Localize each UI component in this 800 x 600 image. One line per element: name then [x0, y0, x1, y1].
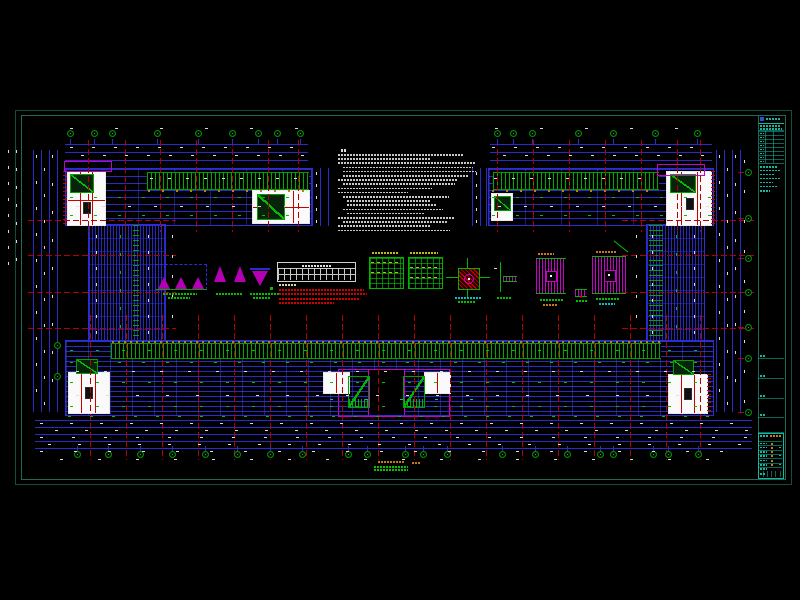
- dim-text: [258, 444, 261, 445]
- dim-text: [145, 430, 148, 431]
- dim-text: [422, 277, 425, 278]
- detail-column-base: [446, 258, 490, 298]
- dim-text: [250, 341, 252, 343]
- axis-extension: [94, 139, 95, 145]
- dim-text: [584, 451, 587, 452]
- dim-text: [36, 389, 37, 392]
- dim-text: [266, 416, 269, 417]
- dim-text: [595, 430, 598, 431]
- dim-text: [652, 315, 653, 318]
- dim-text: [176, 190, 178, 192]
- dim-text: [618, 190, 620, 192]
- dim-text: [448, 341, 450, 343]
- notes-line: [338, 162, 476, 164]
- dim-text: [616, 382, 619, 383]
- dim-text: [316, 172, 317, 175]
- dim-text: [205, 128, 208, 129]
- dimension-line: [490, 144, 712, 145]
- dim-text: [492, 197, 495, 198]
- dim-text: [660, 197, 663, 198]
- hatch-square-icon: [70, 174, 94, 193]
- dim-text: [376, 416, 379, 417]
- annotation-label: [497, 297, 511, 299]
- dim-text: [178, 416, 181, 417]
- axis-bubble: [745, 289, 752, 296]
- dim-text: [735, 379, 736, 382]
- dim-text: [640, 423, 643, 424]
- dim-text: [384, 371, 387, 372]
- schedule-grid: [278, 269, 355, 280]
- dim-text: [470, 399, 473, 400]
- grid-axis-line: [28, 220, 176, 221]
- dim-text: [496, 341, 498, 343]
- dim-text: [652, 283, 653, 286]
- cad-viewport[interactable]: [0, 0, 800, 600]
- annotation-label: [378, 461, 404, 463]
- dim-text: [466, 341, 468, 343]
- dim-text: [652, 251, 653, 254]
- dim-text: [478, 459, 481, 460]
- dim-text: [358, 341, 360, 343]
- annotation-label: [576, 300, 588, 302]
- dim-text: [252, 382, 255, 383]
- dim-text: [70, 382, 73, 383]
- dimension-line: [35, 420, 752, 421]
- dim-text: [592, 459, 595, 460]
- dim-text: [662, 416, 665, 417]
- dim-text: [44, 376, 45, 379]
- dim-text: [630, 128, 633, 129]
- dim-text: [130, 341, 132, 343]
- dim-text: [394, 341, 396, 343]
- dim-text: [564, 406, 567, 407]
- dim-text: [304, 341, 306, 343]
- annotation-label: [279, 302, 334, 304]
- annotation-label: [253, 297, 271, 299]
- dim-text: [96, 299, 97, 302]
- dim-text: [371, 272, 374, 273]
- dim-text: [94, 362, 97, 363]
- dim-text: [680, 206, 683, 207]
- dim-text: [214, 197, 217, 198]
- dim-text: [664, 371, 667, 372]
- dim-text: [160, 371, 163, 372]
- annotation-label: [458, 301, 476, 303]
- grid-axis-line: [622, 328, 755, 329]
- dim-text: [148, 235, 149, 238]
- anchor-ring-icon: [464, 274, 474, 284]
- dim-text: [530, 416, 533, 417]
- dim-text: [492, 190, 494, 192]
- dim-text: [85, 430, 88, 431]
- dim-text: [727, 246, 728, 249]
- notes-line: [343, 175, 469, 177]
- dim-text: [328, 371, 331, 372]
- dimension-line: [724, 150, 725, 412]
- dim-text: [395, 272, 398, 273]
- dim-text: [257, 155, 260, 156]
- dim-text: [460, 350, 463, 351]
- dim-text: [265, 430, 268, 431]
- dim-text: [180, 206, 183, 207]
- dim-text: [8, 182, 9, 185]
- dim-text: [576, 206, 579, 207]
- annotation-label: [596, 298, 620, 300]
- dim-text: [124, 341, 126, 343]
- dimension-line: [35, 434, 752, 435]
- dim-text: [148, 331, 149, 334]
- axis-extension: [232, 139, 233, 145]
- dim-text: [358, 362, 361, 363]
- dim-text: [552, 416, 555, 417]
- dim-text: [744, 370, 745, 373]
- annotation-label: [372, 252, 398, 254]
- axis-bubble: [229, 130, 236, 137]
- dim-text: [408, 444, 411, 445]
- dim-text: [162, 190, 164, 192]
- dim-text: [574, 341, 576, 343]
- dimension-line: [320, 168, 321, 226]
- dim-text: [694, 299, 695, 302]
- dim-text: [516, 459, 519, 460]
- dim-text: [76, 371, 79, 372]
- dim-text: [244, 451, 247, 452]
- dim-text: [392, 437, 395, 438]
- dim-text: [414, 451, 417, 452]
- dim-text: [125, 155, 128, 156]
- axis-bubble: [510, 130, 517, 137]
- dim-text: [616, 341, 618, 343]
- dim-text: [52, 379, 53, 382]
- dim-text: [36, 337, 37, 340]
- dim-text: [744, 340, 745, 343]
- dim-text: [434, 382, 437, 383]
- dim-text: [478, 362, 481, 363]
- dim-text: [122, 350, 125, 351]
- dim-text: [138, 444, 141, 445]
- dim-text: [738, 444, 741, 445]
- shaft-opening: [85, 387, 93, 399]
- dim-text: [166, 395, 169, 396]
- notes-line: [338, 217, 454, 219]
- axis-extension: [70, 139, 71, 145]
- axis-bubble: [694, 130, 701, 137]
- dim-text: [679, 155, 682, 156]
- shaft-opening: [686, 198, 694, 210]
- annotation-label: [279, 298, 359, 300]
- wall-line: [437, 373, 438, 393]
- dimension-line: [486, 168, 487, 226]
- grid-axis-line: [666, 315, 667, 460]
- dim-text: [498, 444, 501, 445]
- detail-truss-section: [214, 266, 246, 282]
- annotation-label: [540, 299, 564, 301]
- dim-text: [694, 283, 695, 286]
- axis-bubble: [274, 130, 281, 137]
- dim-text: [602, 206, 605, 207]
- dim-text: [406, 395, 409, 396]
- floor-plan: [0, 0, 800, 600]
- grid-axis-line: [450, 315, 451, 460]
- dim-text: [232, 437, 235, 438]
- dim-text: [700, 423, 703, 424]
- dim-text: [538, 350, 541, 351]
- dim-text: [715, 430, 718, 431]
- dim-text: [348, 444, 351, 445]
- dim-text: [514, 147, 517, 148]
- dim-text: [106, 395, 109, 396]
- dim-text: [364, 459, 367, 460]
- dim-text: [94, 215, 97, 216]
- dim-text: [720, 451, 723, 452]
- dim-text: [706, 206, 709, 207]
- dim-text: [330, 406, 333, 407]
- dim-text: [280, 423, 283, 424]
- dim-text: [460, 406, 463, 407]
- axis-bubble: [665, 451, 672, 458]
- dim-text: [70, 362, 73, 363]
- dimension-line: [312, 168, 313, 226]
- notes-line: [343, 183, 455, 185]
- dim-text: [208, 341, 210, 343]
- dim-text: [120, 271, 121, 274]
- dim-text: [574, 362, 577, 363]
- dim-text: [44, 168, 45, 171]
- axis-bubble: [297, 130, 304, 137]
- dim-text: [148, 315, 149, 318]
- dim-text: [400, 341, 402, 343]
- dim-text: [214, 341, 216, 343]
- dim-text: [456, 437, 459, 438]
- dim-text: [371, 262, 374, 263]
- dim-text: [160, 423, 163, 424]
- dim-text: [532, 341, 534, 343]
- dim-text: [150, 178, 153, 179]
- dimension-line: [328, 168, 329, 226]
- stair-flight-west: [348, 376, 370, 408]
- dim-text: [727, 168, 728, 171]
- dim-text: [174, 459, 177, 460]
- axis-bubble: [564, 451, 571, 458]
- dim-text: [676, 395, 679, 396]
- axis-bubble: [575, 130, 582, 137]
- dim-text: [526, 395, 529, 396]
- dim-text: [388, 341, 390, 343]
- axis-bubble: [745, 215, 752, 222]
- dim-text: [744, 190, 745, 193]
- dim-text: [636, 215, 639, 216]
- grid-axis-line: [160, 140, 161, 232]
- dim-text: [352, 341, 354, 343]
- dim-text: [490, 341, 492, 343]
- dim-text: [719, 259, 720, 262]
- dim-text: [142, 362, 145, 363]
- dim-text: [166, 362, 169, 363]
- dim-text: [512, 350, 515, 351]
- dim-text: [550, 341, 552, 343]
- opening-outline-top-right: [657, 164, 705, 176]
- dim-text: [318, 444, 321, 445]
- dim-text: [620, 178, 623, 179]
- dim-text: [540, 215, 543, 216]
- dim-text: [250, 423, 253, 424]
- dim-text: [226, 341, 228, 343]
- weld-dot: [580, 296, 582, 298]
- dim-text: [475, 430, 478, 431]
- dim-text: [628, 206, 631, 207]
- dim-text: [70, 215, 73, 216]
- axis-extension: [300, 139, 301, 145]
- dim-text: [210, 451, 213, 452]
- grid-axis-line: [414, 315, 415, 460]
- dim-text: [735, 183, 736, 186]
- axis-bubble: [499, 451, 506, 458]
- dim-text: [735, 323, 736, 326]
- dim-text: [278, 451, 281, 452]
- dim-text: [636, 235, 637, 238]
- dim-text: [676, 307, 677, 310]
- dim-text: [377, 272, 380, 273]
- dim-text: [580, 423, 583, 424]
- dim-text: [514, 341, 516, 343]
- axis-bubble: [444, 451, 451, 458]
- dim-text: [383, 262, 386, 263]
- dim-text: [380, 451, 383, 452]
- dim-text: [410, 277, 413, 278]
- dim-text: [60, 459, 63, 460]
- dim-text: [564, 382, 567, 383]
- annotation-label: [599, 303, 615, 305]
- dim-text: [591, 155, 594, 156]
- notes-line: [343, 221, 447, 223]
- dim-text: [52, 155, 53, 158]
- axis-extension: [613, 139, 614, 145]
- dim-text: [310, 416, 313, 417]
- dim-text: [81, 155, 84, 156]
- dim-text: [326, 459, 329, 460]
- dim-text: [727, 220, 728, 223]
- grid-axis-line: [622, 255, 755, 256]
- dimension-line: [35, 441, 752, 442]
- rebar-ticks: [707, 374, 711, 412]
- dim-text: [668, 350, 671, 351]
- dim-text: [580, 341, 582, 343]
- dim-text: [160, 128, 163, 129]
- dim-text: [646, 147, 649, 148]
- dim-text: [220, 423, 223, 424]
- dim-text: [516, 197, 519, 198]
- dim-text: [490, 423, 493, 424]
- dim-text: [580, 147, 583, 148]
- wall-line: [694, 375, 695, 413]
- member-line: [500, 262, 501, 292]
- dim-text: [719, 181, 720, 184]
- dim-text: [655, 430, 658, 431]
- grid-axis-line: [198, 315, 199, 460]
- dim-text: [238, 362, 241, 363]
- dim-text: [290, 147, 293, 148]
- dim-text: [252, 406, 255, 407]
- dim-text: [636, 371, 639, 372]
- notes-line: [338, 230, 450, 232]
- dim-text: [70, 406, 73, 407]
- dim-text: [512, 178, 515, 179]
- dim-text: [280, 341, 282, 343]
- dim-text: [55, 430, 58, 431]
- grid-axis-line: [378, 315, 379, 460]
- dim-text: [630, 459, 633, 460]
- dim-text: [202, 147, 205, 148]
- axis-bubble: [255, 130, 262, 137]
- dim-text: [174, 382, 177, 383]
- dim-text: [494, 268, 497, 269]
- wall-line: [81, 373, 82, 413]
- dim-text: [154, 341, 156, 343]
- dim-text: [172, 341, 174, 343]
- dim-text: [148, 382, 151, 383]
- dim-text: [598, 341, 600, 343]
- dim-text: [112, 416, 115, 417]
- axis-extension: [497, 139, 498, 145]
- dim-text: [502, 362, 505, 363]
- dim-text: [708, 215, 711, 216]
- dim-text: [370, 341, 372, 343]
- dim-text: [524, 371, 527, 372]
- dim-text: [118, 341, 120, 343]
- dim-text: [654, 206, 657, 207]
- dim-text: [445, 430, 448, 431]
- dim-text: [190, 423, 193, 424]
- dim-text: [328, 437, 331, 438]
- dim-text: [408, 350, 411, 351]
- dim-text: [636, 255, 637, 258]
- dim-text: [538, 382, 541, 383]
- axis-bubble: [420, 451, 427, 458]
- grid-axis-line: [268, 140, 269, 232]
- dim-text: [174, 350, 177, 351]
- dim-text: [430, 423, 433, 424]
- dim-text: [376, 395, 379, 396]
- dim-text: [706, 395, 709, 396]
- dim-text: [440, 459, 443, 460]
- dim-text: [410, 267, 413, 268]
- dim-text: [136, 459, 139, 460]
- axis-bubble: [745, 355, 752, 362]
- dim-text: [36, 259, 37, 262]
- dim-text: [90, 416, 93, 417]
- dim-text: [94, 197, 97, 198]
- axis-extension: [277, 139, 278, 145]
- embed-plate: [546, 271, 557, 282]
- dim-text: [556, 341, 558, 343]
- dim-text: [200, 350, 203, 351]
- dim-text: [408, 406, 411, 407]
- dim-text: [548, 190, 550, 192]
- dim-text: [120, 235, 121, 238]
- dim-text: [466, 395, 469, 396]
- dim-text: [520, 190, 522, 192]
- dim-text: [680, 437, 683, 438]
- dim-text: [430, 362, 433, 363]
- dim-text: [502, 341, 504, 343]
- dim-text: [300, 371, 303, 372]
- dim-text: [142, 341, 144, 343]
- dim-text: [52, 183, 53, 186]
- dim-text: [668, 382, 671, 383]
- axis-bubble: [695, 451, 702, 458]
- axis-bubble: [74, 451, 81, 458]
- truss-icon: [234, 266, 246, 282]
